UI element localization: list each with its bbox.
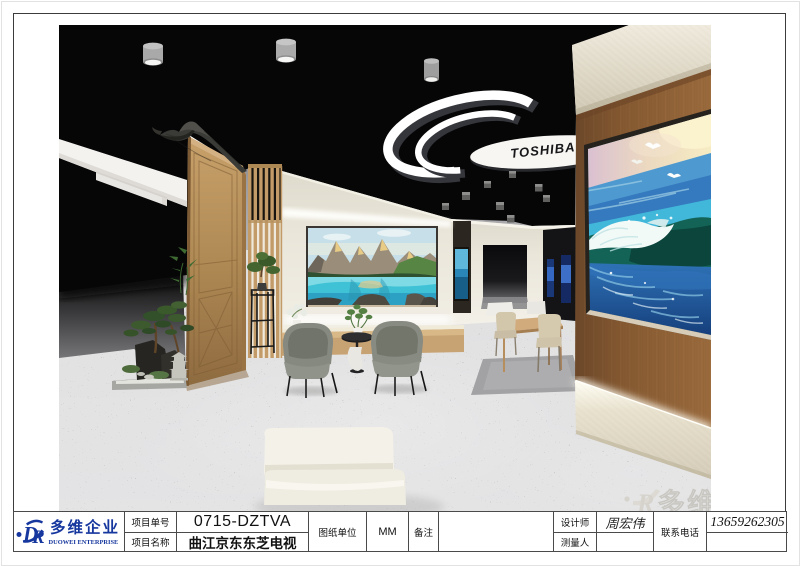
- svg-text:DUOWEI ENTERPRISE: DUOWEI ENTERPRISE: [49, 539, 119, 546]
- svg-text:R: R: [31, 527, 45, 548]
- svg-text:多维: 多维: [657, 488, 711, 511]
- svg-text:多维企业: 多维企业: [50, 517, 120, 536]
- svg-text:R: R: [636, 489, 654, 511]
